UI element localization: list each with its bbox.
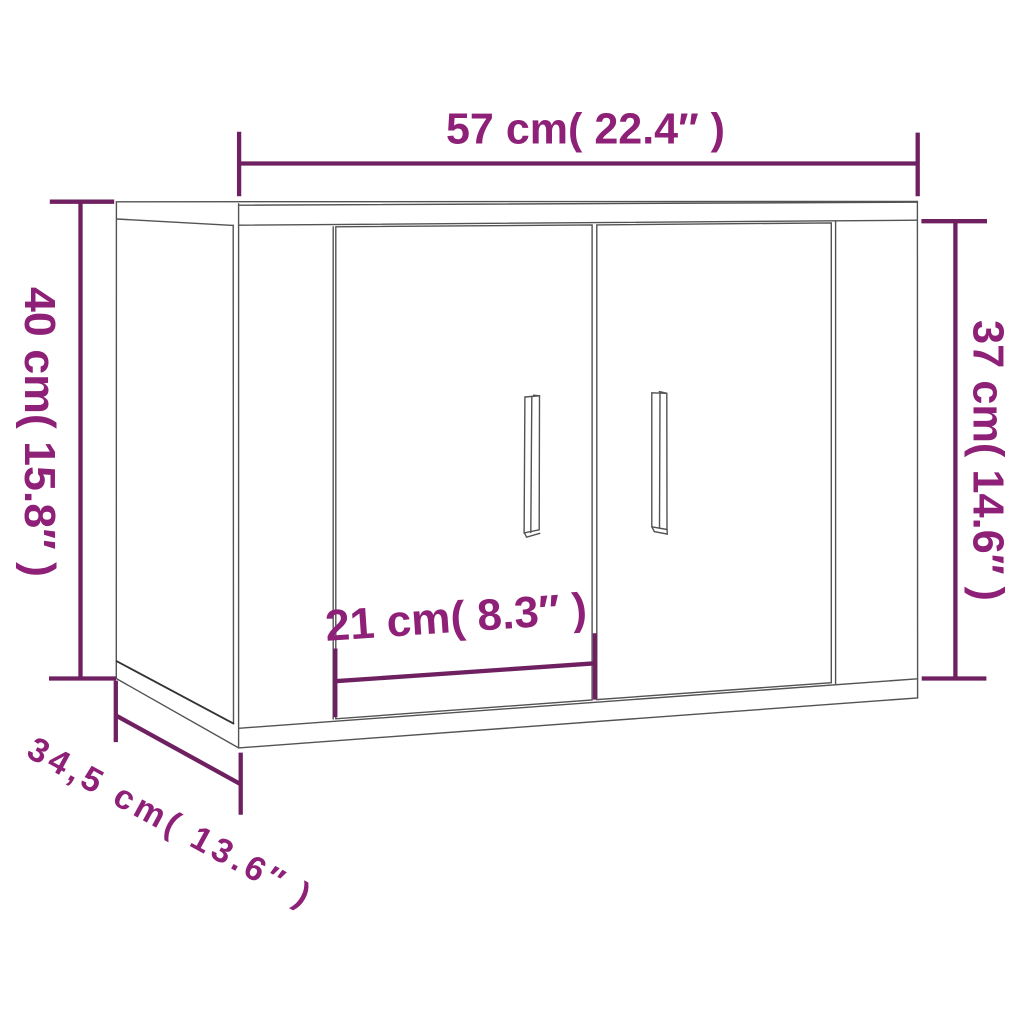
svg-text:21 cm( 8.3″ ): 21 cm( 8.3″ ) bbox=[324, 584, 589, 651]
svg-text:34,5 cm( 13.6″ ): 34,5 cm( 13.6″ ) bbox=[21, 730, 317, 915]
svg-text:57 cm( 22.4″ ): 57 cm( 22.4″ ) bbox=[446, 105, 725, 154]
svg-text:37 cm( 14.6″ ): 37 cm( 14.6″ ) bbox=[964, 320, 1013, 601]
svg-text:40 cm( 15.8″ ): 40 cm( 15.8″ ) bbox=[15, 287, 64, 577]
